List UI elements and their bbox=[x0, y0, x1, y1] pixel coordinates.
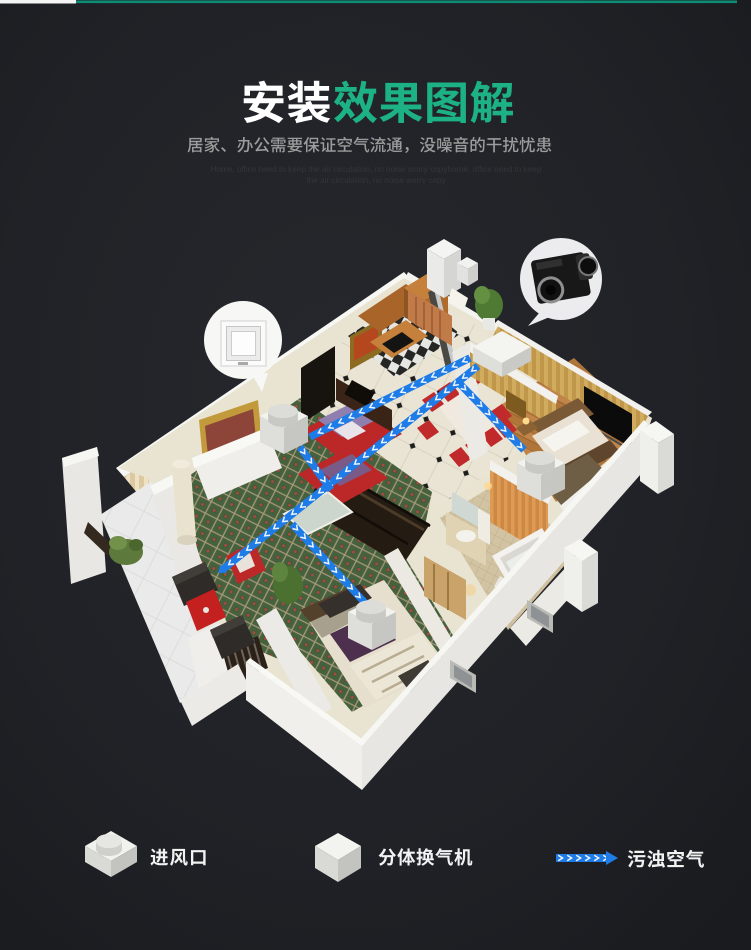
svg-text:the air circulation, no noise: the air circulation, no noise worry copy bbox=[306, 176, 446, 185]
svg-text:Home, office need to keep the: Home, office need to keep the air circul… bbox=[210, 165, 541, 174]
